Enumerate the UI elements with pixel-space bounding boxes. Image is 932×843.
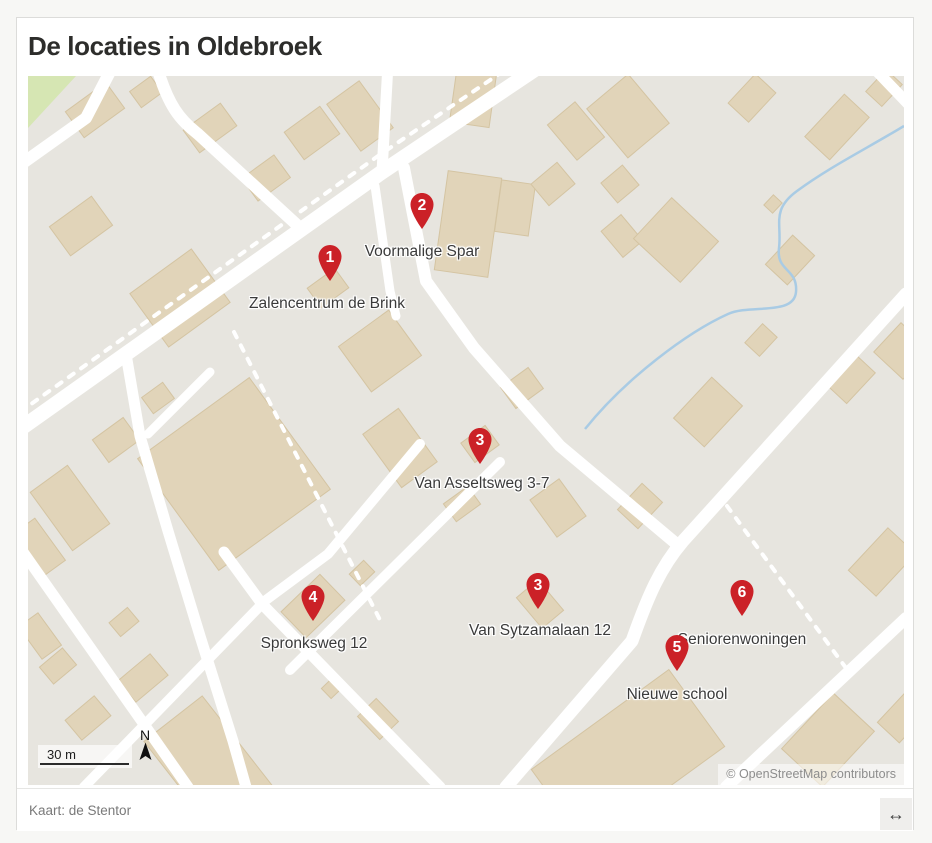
map-label: Van Sytzamalaan 12 — [469, 622, 611, 640]
map-marker-pin[interactable]: 1 — [315, 243, 345, 282]
map-marker-pin[interactable]: 2 — [407, 191, 437, 230]
map-scale-bar: 30 m — [38, 745, 132, 768]
card-footer: Kaart: de Stentor ↔ — [17, 788, 913, 831]
resize-button[interactable]: ↔ — [880, 798, 912, 830]
compass-north: N — [134, 728, 156, 770]
map-label: Zalencentrum de Brink — [249, 295, 405, 313]
map-marker-pin[interactable]: 6 — [727, 578, 757, 617]
marker-number: 5 — [673, 639, 682, 656]
map-marker-pin[interactable]: 3 — [523, 571, 553, 610]
map-label: Spronksweg 12 — [261, 635, 368, 653]
marker-number: 3 — [534, 577, 543, 594]
article-card: De locaties in Oldebroek Zalencentrum de… — [16, 17, 914, 830]
map-canvas[interactable]: Zalencentrum de BrinkVoormalige SparVan … — [28, 76, 904, 785]
map-label: Van Asseltsweg 3-7 — [415, 475, 550, 493]
map-source-caption: Kaart: de Stentor — [29, 803, 131, 818]
map-marker-pin[interactable]: 3 — [465, 426, 495, 465]
marker-number: 2 — [418, 197, 427, 214]
page-title: De locaties in Oldebroek — [28, 31, 322, 62]
marker-number: 1 — [326, 249, 335, 266]
marker-number: 6 — [738, 584, 747, 601]
map-label: Seniorenwoningen — [678, 631, 806, 649]
map-label: Nieuwe school — [627, 686, 728, 704]
marker-number: 4 — [309, 589, 318, 606]
map-label: Voormalige Spar — [365, 243, 480, 261]
north-label: N — [134, 728, 156, 742]
map-marker-pin[interactable]: 5 — [662, 633, 692, 672]
scale-line — [40, 763, 129, 765]
north-arrow-icon — [138, 742, 153, 761]
marker-number: 3 — [476, 432, 485, 449]
osm-attribution[interactable]: © OpenStreetMap contributors — [718, 764, 904, 785]
scale-label: 30 m — [47, 747, 76, 762]
resize-icon: ↔ — [887, 804, 905, 824]
map-marker-pin[interactable]: 4 — [298, 583, 328, 622]
